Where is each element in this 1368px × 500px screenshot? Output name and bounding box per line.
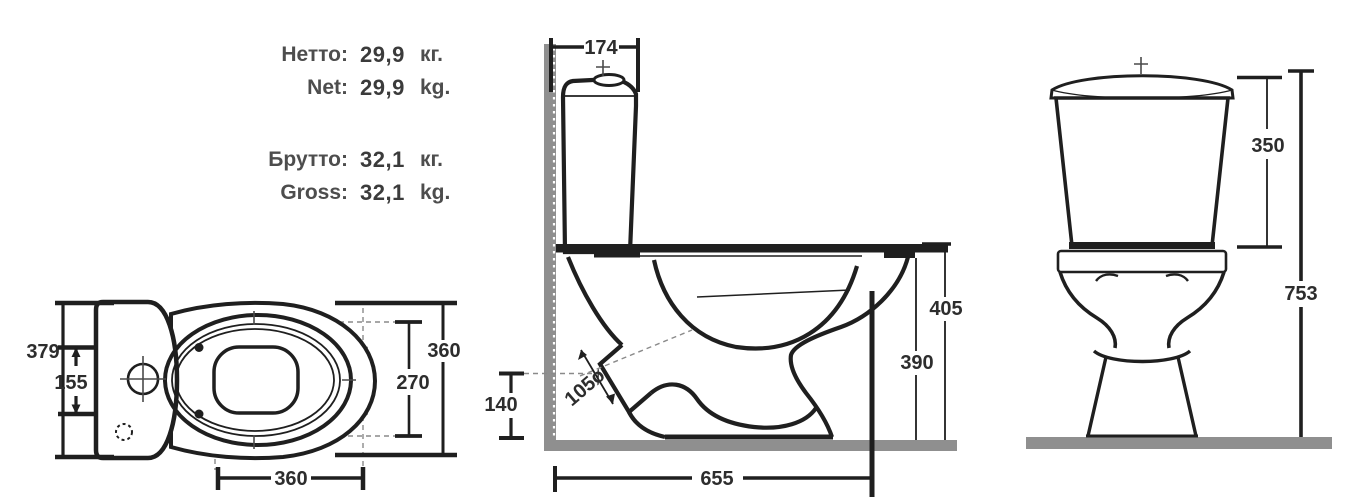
- dim-hole-spacing: 155: [54, 372, 87, 394]
- base-rear-curve: [629, 412, 665, 437]
- cistern-side-outline: [563, 79, 636, 252]
- cistern-front-outline: [1056, 98, 1228, 246]
- weight-spacer: [230, 104, 470, 143]
- technical-drawing-page: 379 155 360 270 360: [0, 0, 1368, 500]
- tank-base-bar: [1069, 242, 1215, 249]
- net-value-en: 29,9: [348, 71, 420, 104]
- net-label-ru: Нетто:: [230, 38, 348, 71]
- dim-outlet-height: 140: [484, 394, 517, 416]
- dim-bowl-length: 360: [274, 468, 307, 490]
- net-value-ru: 29,9: [348, 38, 420, 71]
- gross-label-ru: Брутто:: [230, 143, 348, 176]
- net-weight-en: Net: 29,9 kg.: [230, 71, 470, 104]
- bowl-deck: [1058, 251, 1226, 272]
- net-unit-ru: кг.: [420, 38, 443, 71]
- weight-specs: Нетто: 29,9 кг. Net: 29,9 kg. Брутто: 32…: [230, 38, 470, 209]
- pedestal-legs: [1088, 357, 1196, 436]
- rim-front-tick: [884, 253, 915, 259]
- plan-view: 379 155 360 270 360: [26, 302, 460, 490]
- net-weight-ru: Нетто: 29,9 кг.: [230, 38, 470, 71]
- bowl-right-curve: [1169, 272, 1224, 348]
- dim-bowl-width: 360: [427, 340, 460, 362]
- dim-seat-opening: 270: [396, 372, 429, 394]
- floor-side: [544, 440, 957, 451]
- back-slope: [568, 257, 622, 345]
- dim-350-ticks: [1237, 78, 1282, 248]
- side-view: 174 140 105ø 405 390 655: [484, 37, 962, 497]
- seat-bar: [556, 244, 948, 253]
- toilet-dimension-drawing: 379 155 360 270 360: [0, 0, 1368, 500]
- dim-overall-height: 753: [1284, 283, 1317, 305]
- bowl-cup: [654, 260, 857, 348]
- dim-rim-height: 390: [900, 352, 933, 374]
- gross-value-ru: 32,1: [348, 143, 420, 176]
- mount-hole-lower: [195, 410, 204, 419]
- net-unit-en: kg.: [420, 71, 450, 104]
- gross-weight-en: Gross: 32,1 kg.: [230, 176, 470, 209]
- front-view: 350 753: [1026, 57, 1332, 449]
- gross-unit-en: kg.: [420, 176, 450, 209]
- dim-overall-width: 379: [26, 341, 59, 363]
- bowl-opening: [214, 347, 298, 413]
- mount-hole-upper: [195, 343, 204, 352]
- net-label-en: Net:: [230, 71, 348, 104]
- floor-front: [1026, 437, 1332, 449]
- front-centerline: [1134, 57, 1148, 74]
- dim-overall-depth: 655: [700, 468, 733, 490]
- dim-seat-height: 405: [929, 298, 962, 320]
- wall-hatch: [544, 44, 556, 440]
- gross-weight-ru: Брутто: 32,1 кг.: [230, 143, 470, 176]
- dim-tank-depth: 174: [584, 37, 618, 59]
- gross-value-en: 32,1: [348, 176, 420, 209]
- water-line: [697, 290, 850, 297]
- bowl-bottom-arc: [1094, 351, 1190, 362]
- gross-unit-ru: кг.: [420, 143, 443, 176]
- outlet-mouth: [600, 345, 651, 412]
- bowl-left-curve: [1060, 272, 1115, 348]
- seat-hinge-step: [594, 253, 640, 258]
- flush-button: [594, 75, 624, 86]
- trap-curve: [651, 384, 816, 427]
- gross-label-en: Gross:: [230, 176, 348, 209]
- seat-hinges: [1096, 274, 1188, 281]
- dim-tank-height: 350: [1251, 135, 1284, 157]
